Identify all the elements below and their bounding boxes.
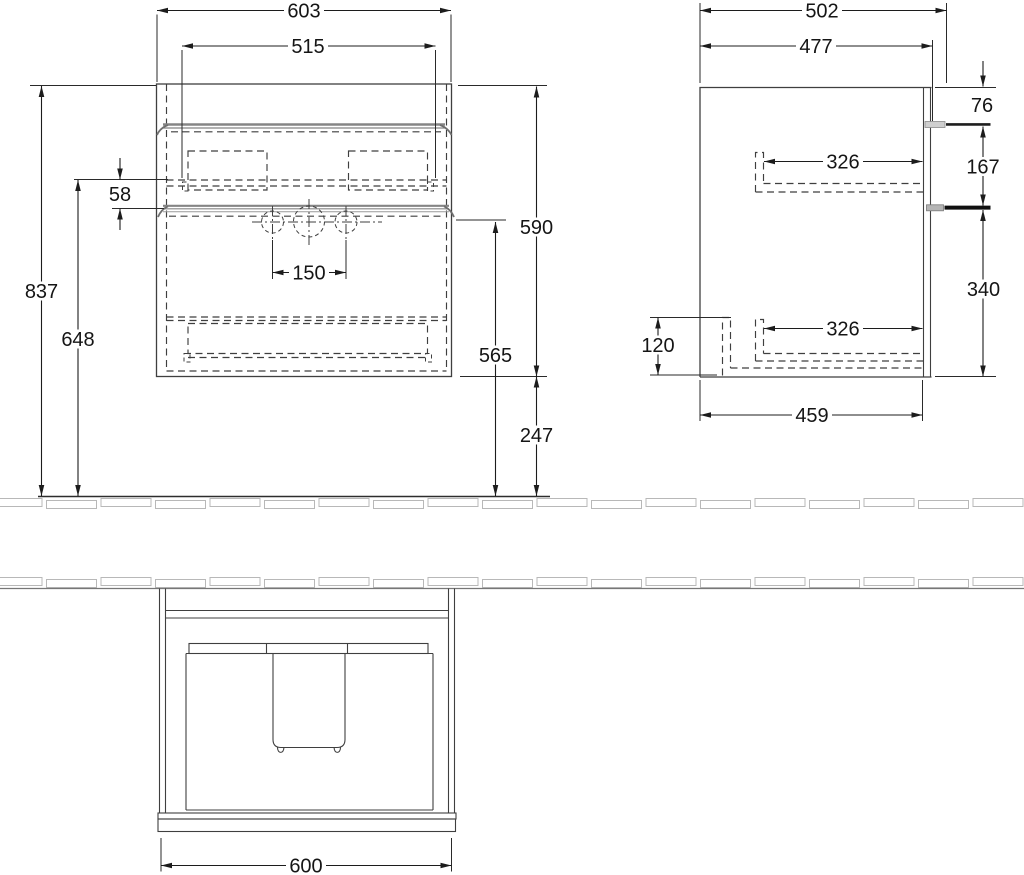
dimension-label: 326	[826, 319, 859, 341]
cabinet-outline-side	[700, 88, 932, 378]
hatch-brick	[810, 501, 860, 509]
dimension-arrowhead	[273, 270, 284, 276]
dimension-arrowhead	[75, 180, 81, 191]
hatch-brick	[919, 501, 969, 509]
dimension-label: 76	[971, 95, 993, 117]
dimension-arrowhead	[161, 863, 172, 869]
dimension-label: 247	[520, 425, 553, 447]
lower-drawer-notch-right	[426, 354, 432, 363]
dim-58: 58	[74, 158, 168, 230]
hatch-brick	[701, 501, 751, 509]
dimension-label: 150	[292, 263, 325, 285]
dimension-arrowhead	[700, 8, 711, 14]
dim-837: 837	[22, 86, 157, 497]
dimension-arrowhead	[764, 326, 775, 332]
dim-326: 326	[764, 319, 923, 341]
wall-bracket-lower	[927, 205, 944, 211]
dimension-arrowhead	[655, 318, 661, 329]
dimension-arrowhead	[534, 377, 540, 388]
dimension-arrowhead	[493, 222, 499, 233]
lower-drawer-bracket	[188, 324, 428, 354]
dimension-label: 565	[479, 345, 512, 367]
drawer-front-strip	[189, 644, 428, 654]
dimension-label: 590	[520, 217, 553, 239]
dimension-arrowhead	[980, 210, 986, 221]
dimension-arrowhead	[922, 43, 933, 49]
hatch-brick	[755, 499, 805, 507]
lower-drawer-divider-lines	[167, 317, 447, 321]
dimension-arrowhead	[980, 127, 986, 138]
dimension-label: 167	[966, 157, 999, 179]
upper-drawer-divider-lines	[167, 180, 447, 186]
dim-167: 167	[963, 127, 1003, 206]
hatch-brick	[101, 499, 151, 507]
dimension-label: 120	[641, 335, 674, 357]
hatch-brick	[210, 499, 260, 507]
lower-runner-hook-front	[723, 318, 731, 376]
hatch-brick	[537, 499, 587, 507]
front-elevation-view	[38, 84, 550, 497]
dimension-arrowhead	[534, 366, 540, 377]
hatch-brick	[428, 578, 478, 586]
dim-648: 648	[58, 180, 98, 496]
dimension-arrowhead	[700, 43, 711, 49]
hatch-brick	[755, 578, 805, 586]
dimension-arrowhead	[534, 87, 540, 98]
dimension-label: 502	[805, 1, 838, 23]
dimension-label: 58	[109, 184, 131, 206]
hatch-brick	[483, 580, 533, 588]
dimension-label: 603	[287, 1, 320, 23]
siphon-cutout-feet	[278, 748, 341, 753]
dimension-arrowhead	[117, 169, 123, 180]
dim-150: 150	[273, 240, 347, 285]
dimension-label: 326	[826, 152, 859, 174]
drawer-body-plan	[186, 654, 433, 811]
dimension-arrowhead	[39, 86, 45, 97]
dimension-arrowhead	[440, 8, 451, 14]
hatch-brick	[810, 580, 860, 588]
dimension-label: 837	[25, 281, 58, 303]
hatch-brick	[864, 499, 914, 507]
front-edge-strip-1	[158, 813, 456, 819]
hatch-brick	[47, 501, 97, 509]
dim-477: 477	[700, 36, 933, 121]
dimension-label: 459	[795, 405, 828, 427]
dim-600: 600	[161, 838, 452, 875]
hatch-brick	[973, 499, 1023, 507]
upper-drawer-bracket-right	[349, 151, 428, 190]
drawer-front-strip-dividers	[267, 644, 348, 654]
drawing-page: 6035155883764815059056524750247776167340…	[0, 0, 1024, 875]
hatch-brick	[428, 499, 478, 507]
dim-565: 565	[456, 220, 516, 496]
hatch-brick	[265, 501, 315, 509]
hatch-brick	[646, 499, 696, 507]
lower-runner-hook-mid	[756, 320, 764, 362]
dimension-arrowhead	[655, 364, 661, 375]
dim-590: 590	[458, 86, 557, 377]
dimension-arrowhead	[912, 412, 923, 418]
hatch-brick	[592, 580, 642, 588]
cabinet-hidden-edges	[167, 84, 447, 371]
dimension-arrowhead	[75, 485, 81, 496]
dimension-annotations: 6035155883764815059056524750247776167340…	[22, 1, 1004, 875]
dimension-arrowhead	[335, 270, 346, 276]
floor-band	[0, 499, 1024, 509]
dimension-arrowhead	[912, 326, 923, 332]
hatch-brick	[210, 578, 260, 586]
wall-band	[0, 578, 1024, 588]
hatch-brick	[483, 501, 533, 509]
upper-runner-rails	[756, 184, 924, 193]
technical-drawing-canvas: 6035155883764815059056524750247776167340…	[0, 0, 1024, 875]
hatch-brick	[47, 580, 97, 588]
dimension-arrowhead	[700, 412, 711, 418]
dimension-arrowhead	[534, 485, 540, 496]
front-edge-strip-2	[158, 819, 456, 832]
dim-247: 247	[517, 377, 557, 497]
lower-runner-rails	[731, 354, 924, 369]
hatch-brick	[156, 580, 206, 588]
hatch-brick	[864, 578, 914, 586]
dimension-label: 600	[289, 856, 322, 875]
dimension-arrowhead	[182, 43, 193, 49]
dimension-arrowhead	[39, 485, 45, 496]
siphon-cutout	[273, 654, 345, 748]
dimension-arrowhead	[157, 8, 168, 14]
floor-wall-hatch-bands	[0, 499, 1024, 588]
side-panels-plan	[160, 589, 455, 814]
hatch-brick	[319, 578, 369, 586]
hatch-brick	[646, 578, 696, 586]
back-panel-lines	[924, 88, 931, 378]
hatch-brick	[265, 580, 315, 588]
dim-515: 515	[182, 36, 436, 178]
dimension-arrowhead	[912, 159, 923, 165]
hatch-brick	[0, 578, 42, 586]
mounting-rail-plan	[166, 611, 449, 619]
hatch-brick	[592, 501, 642, 509]
hatch-brick	[374, 501, 424, 509]
dim-340: 340	[935, 210, 1004, 377]
hatch-brick	[374, 580, 424, 588]
hatch-brick	[0, 499, 42, 507]
dimension-arrowhead	[936, 8, 947, 14]
hatch-brick	[973, 578, 1023, 586]
dimension-arrowhead	[764, 159, 775, 165]
dimension-label: 340	[967, 279, 1000, 301]
wall-bracket-upper	[925, 122, 945, 128]
dimension-label: 477	[799, 36, 832, 58]
dimension-arrowhead	[493, 485, 499, 496]
dimension-label: 515	[291, 36, 324, 58]
hatch-brick	[319, 499, 369, 507]
dimension-arrowhead	[425, 43, 436, 49]
dimension-label: 648	[61, 329, 94, 351]
dim-326: 326	[764, 152, 923, 174]
hatch-brick	[156, 501, 206, 509]
dimension-arrowhead	[980, 366, 986, 377]
hatch-brick	[919, 580, 969, 588]
hatch-brick	[701, 580, 751, 588]
dimension-arrowhead	[117, 209, 123, 220]
hatch-brick	[101, 578, 151, 586]
upper-runner-hook	[756, 153, 764, 193]
plan-view	[0, 589, 1024, 832]
dimension-arrowhead	[980, 195, 986, 206]
dimension-arrowhead	[980, 76, 986, 87]
dim-120: 120	[638, 318, 731, 376]
dim-459: 459	[700, 380, 923, 427]
basin-rim-end-curves	[157, 125, 452, 135]
dim-76: 76	[935, 61, 997, 117]
hatch-brick	[537, 578, 587, 586]
upper-drawer-bracket-left	[188, 151, 267, 190]
dimension-arrowhead	[441, 863, 452, 869]
